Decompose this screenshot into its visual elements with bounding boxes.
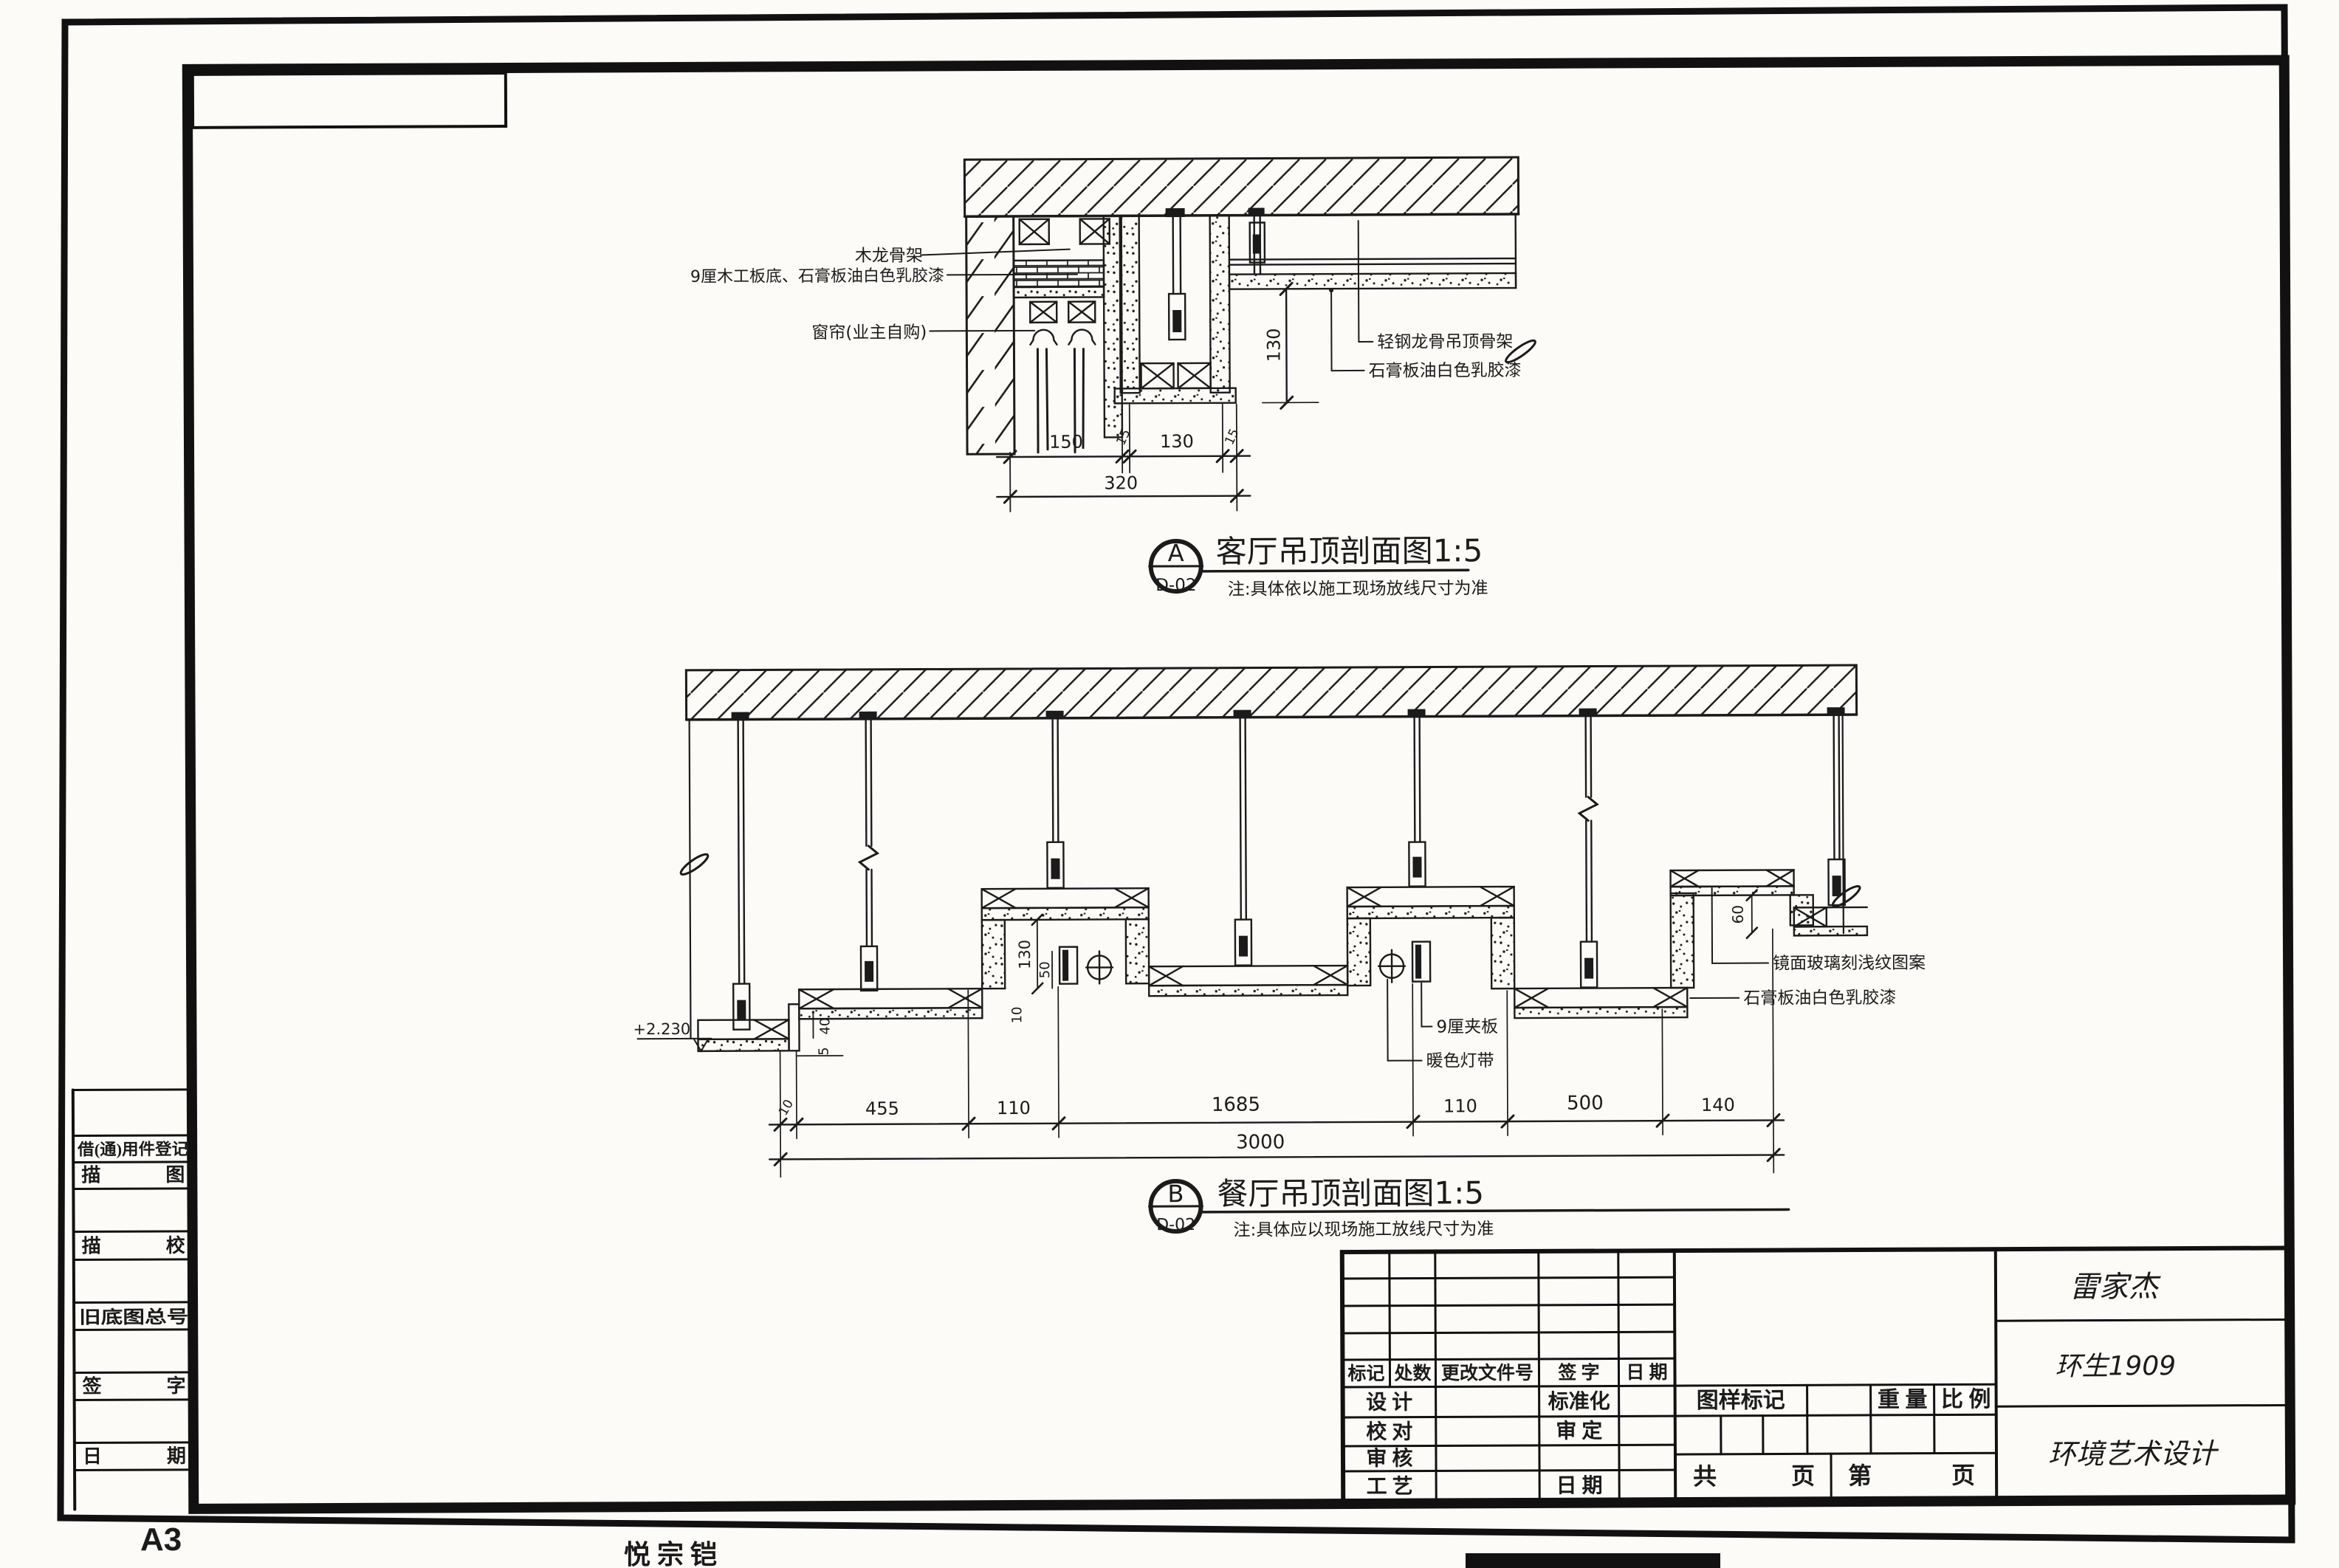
label-plywood-b: 9厘夹板 xyxy=(1436,1017,1498,1036)
dim-b-c5: 500 xyxy=(1567,1093,1604,1115)
tb-h-file: 更改文件号 xyxy=(1441,1362,1533,1384)
sidebar-label-old-negative: 旧底图总号 xyxy=(79,1307,188,1328)
top-left-box xyxy=(193,73,506,128)
dim-a-total: 320 xyxy=(1104,472,1138,493)
tb-h-date: 日 期 xyxy=(1626,1362,1667,1383)
sheet-canvas: 借(通)用件登记 描 图 描 校 旧底图总号 签 字 日 期 xyxy=(0,0,2339,1568)
detail-b-title-text: 餐厅吊顶剖面图1:5 xyxy=(1217,1175,1484,1212)
dims-b-small: 130 50 10 40 5 60 xyxy=(797,890,1758,1056)
label-curtain: 窗帘(业主自购) xyxy=(811,323,927,343)
tb-h-mark: 标记 xyxy=(1347,1364,1384,1384)
detail-b: +2.230 130 50 10 40 5 60 xyxy=(631,665,1926,1243)
paper-size-label: A3 xyxy=(140,1521,182,1558)
detail-b-sheet-no: D-02 xyxy=(1156,1216,1195,1234)
dim-b-60: 60 xyxy=(1729,905,1747,924)
dim-b-130: 130 xyxy=(1016,940,1034,969)
detail-b-note: 注:具体应以现场施工放线尺寸为准 xyxy=(1234,1220,1494,1240)
detail-b-title: B D-02 餐厅吊顶剖面图1:5 注:具体应以现场施工放线尺寸为准 xyxy=(1149,1173,1788,1240)
label-wood-keel: 木龙骨架 xyxy=(855,247,923,266)
dim-a-150: 150 xyxy=(1049,432,1083,453)
sidebar-label-trace-check: 描 校 xyxy=(82,1234,186,1257)
tb-h-sign: 签 字 xyxy=(1557,1362,1599,1383)
dim-a-15b: 15 xyxy=(1222,427,1242,447)
signature-major: 环境艺术设计 xyxy=(2048,1437,2219,1471)
tb-review: 审 核 xyxy=(1366,1446,1412,1471)
tb-total: 共 xyxy=(1693,1463,1717,1490)
label-lamp: 暖色灯带 xyxy=(1426,1051,1494,1070)
tb-process: 工 艺 xyxy=(1367,1475,1413,1499)
tb-approve: 审 定 xyxy=(1556,1419,1602,1443)
detail-a: 130 150 15 130 15 xyxy=(690,157,1539,602)
sidebar-label-signature: 签 字 xyxy=(82,1375,185,1397)
dim-a-height-text: 130 xyxy=(1263,328,1284,362)
signature-class: 环生1909 xyxy=(2055,1351,2176,1382)
annotations-a-right: 轻钢龙骨吊顶骨架 石膏板油白色乳胶漆 xyxy=(1329,220,1522,381)
dim-a-130: 130 xyxy=(1160,431,1194,452)
sidebar-label-date: 日 期 xyxy=(83,1445,186,1468)
curtain-track xyxy=(1030,302,1095,345)
dim-b-10: 10 xyxy=(1009,1006,1025,1023)
drawing-sheet: 借(通)用件登记 描 图 描 校 旧底图总号 签 字 日 期 xyxy=(0,0,2339,1568)
dim-b-5: 5 xyxy=(817,1047,832,1056)
sidebar-label-trace: 描 图 xyxy=(81,1164,185,1186)
tb-drawing-mark: 图样标记 xyxy=(1697,1388,1785,1413)
tb-design: 设 计 xyxy=(1366,1391,1412,1414)
outer-border xyxy=(61,7,2292,1540)
detail-a-ref: A xyxy=(1168,539,1184,567)
dim-b-c2: 110 xyxy=(997,1098,1031,1118)
sidebar-label-borrowed: 借(通)用件登记 xyxy=(77,1140,188,1159)
label-mirror: 镜面玻璃刻浅纹图案 xyxy=(1773,954,1926,974)
tb-standardization: 标准化 xyxy=(1548,1389,1610,1413)
tb-page: 第 xyxy=(1848,1462,1872,1489)
label-plywood-base: 9厘木工板底、石膏板油白色乳胶漆 xyxy=(690,267,944,286)
title-block: 标记 处数 更改文件号 签 字 日 期 设 计 标准化 校 对 审 定 审 核 … xyxy=(1342,1248,2288,1502)
label-gypsum-b: 石膏板油白色乳胶漆 xyxy=(1743,988,1896,1008)
level-text: +2.230 xyxy=(633,1020,690,1038)
dim-a-height: 130 xyxy=(1262,283,1319,408)
dim-b-50: 50 xyxy=(1037,961,1053,978)
blocking-a1 xyxy=(1020,219,1110,244)
ceiling-profile-b xyxy=(698,870,1868,1051)
label-steel-keel: 轻钢龙骨吊顶骨架 xyxy=(1377,332,1513,352)
dim-b-c3: 1685 xyxy=(1212,1094,1260,1116)
tb-page-pages: 页 xyxy=(1951,1462,1975,1488)
detail-a-title-text: 客厅吊顶剖面图1:5 xyxy=(1216,532,1483,570)
dim-b-c4: 110 xyxy=(1443,1096,1477,1116)
label-gypsum-a: 石膏板油白色乳胶漆 xyxy=(1369,361,1522,381)
tb-date2: 日 期 xyxy=(1556,1474,1603,1498)
detail-a-note: 注:具体依以施工现场放线尺寸为准 xyxy=(1228,579,1488,599)
dim-b-40: 40 xyxy=(817,1018,833,1035)
tb-scale: 比 例 xyxy=(1941,1387,1991,1411)
dims-a-chain: 150 15 130 15 320 xyxy=(997,405,1251,512)
tb-check: 校 对 xyxy=(1366,1420,1412,1444)
left-sidebar: 借(通)用件登记 描 图 描 校 旧底图总号 签 字 日 期 xyxy=(73,1090,193,1510)
author-name: 悦 宗 铠 xyxy=(624,1539,717,1568)
signature-name: 雷家杰 xyxy=(2070,1270,2161,1304)
tb-weight: 重 量 xyxy=(1878,1388,1928,1412)
detail-a-title: A D-02 客厅吊顶剖面图1:5 注:具体依以施工现场放线尺寸为准 xyxy=(1150,532,1488,599)
dim-b-c6: 140 xyxy=(1701,1095,1735,1115)
dim-b-c1: 455 xyxy=(865,1098,899,1119)
dim-b-c0: 10 xyxy=(776,1097,797,1118)
detail-b-ref: B xyxy=(1167,1180,1184,1208)
dim-b-total: 3000 xyxy=(1236,1131,1285,1153)
scan-artifact-bar xyxy=(1466,1553,1720,1568)
light-trough xyxy=(1114,216,1236,404)
tb-h-count: 处数 xyxy=(1393,1364,1432,1384)
tb-total-pages: 页 xyxy=(1791,1462,1815,1489)
detail-a-sheet-no: D-02 xyxy=(1155,576,1196,595)
